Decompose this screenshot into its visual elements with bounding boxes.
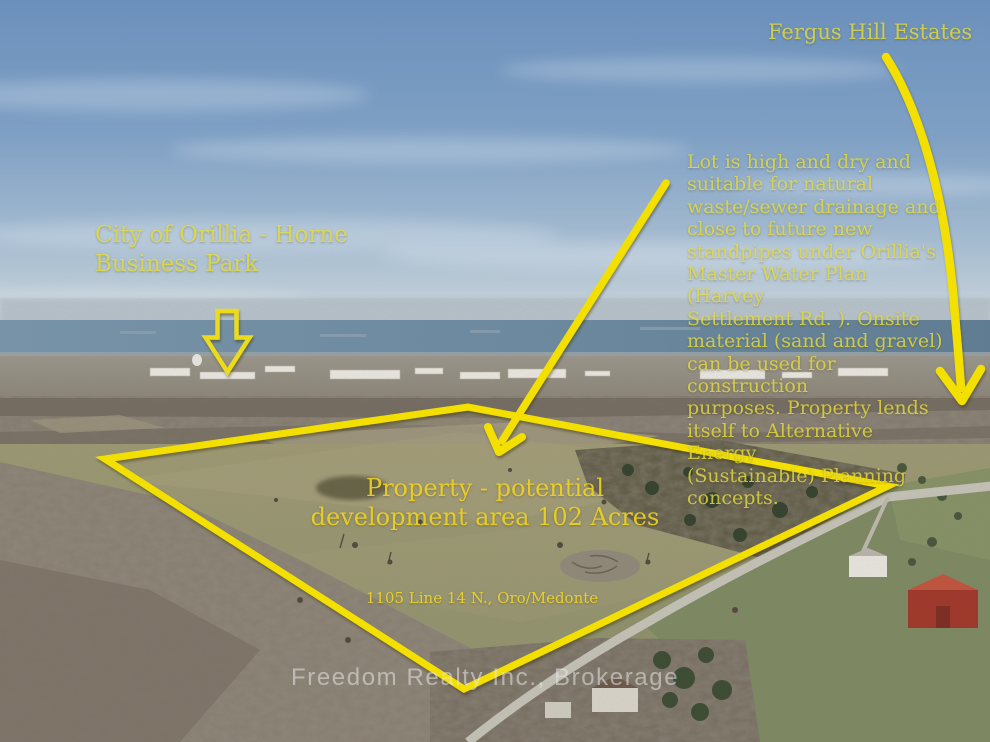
lot-note-arrow: [488, 183, 666, 452]
aerial-listing-photo: Fergus Hill Estates City of Orillia - Ho…: [0, 0, 990, 742]
annotation-overlay: [0, 0, 990, 742]
fergus-hill-arrow: [886, 57, 981, 401]
down-block-arrow-icon: [206, 311, 250, 372]
